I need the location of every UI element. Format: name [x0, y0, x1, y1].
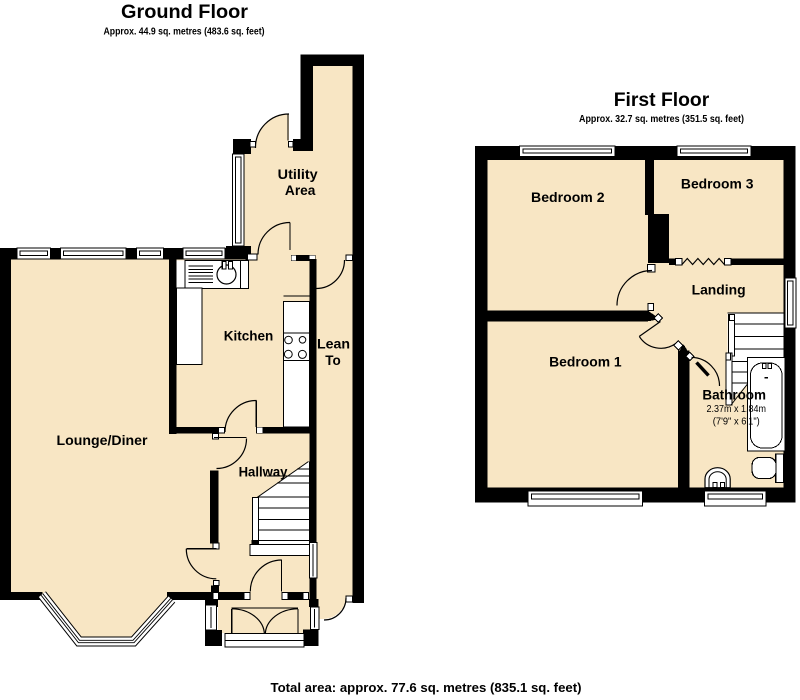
svg-text:First Floor: First Floor	[614, 90, 710, 111]
svg-text:Kitchen: Kitchen	[224, 329, 274, 344]
svg-text:Lean: Lean	[317, 337, 350, 352]
svg-text:Bathroom: Bathroom	[702, 387, 766, 402]
svg-text:2.37m x 1.84m: 2.37m x 1.84m	[707, 404, 767, 415]
svg-text:(7'9" x 6'1"): (7'9" x 6'1")	[713, 417, 760, 428]
svg-text:Utility: Utility	[278, 167, 319, 182]
svg-text:Landing: Landing	[692, 282, 746, 297]
svg-text:To: To	[325, 353, 341, 368]
svg-text:Ground Floor: Ground Floor	[121, 2, 249, 23]
svg-text:Bedroom 1: Bedroom 1	[549, 355, 622, 370]
svg-text:Bedroom 3: Bedroom 3	[681, 177, 754, 192]
svg-text:Approx. 32.7 sq. metres (351.5: Approx. 32.7 sq. metres (351.5 sq. feet)	[579, 113, 744, 125]
svg-text:Bedroom 2: Bedroom 2	[531, 190, 605, 205]
svg-text:Lounge/Diner: Lounge/Diner	[57, 433, 149, 448]
svg-text:Approx. 44.9 sq. metres (483.6: Approx. 44.9 sq. metres (483.6 sq. feet)	[104, 26, 265, 38]
svg-text:Hallway: Hallway	[239, 464, 288, 479]
svg-text:Total area: approx. 77.6 sq. m: Total area: approx. 77.6 sq. metres (835…	[271, 680, 582, 695]
svg-text:Area: Area	[285, 183, 316, 198]
